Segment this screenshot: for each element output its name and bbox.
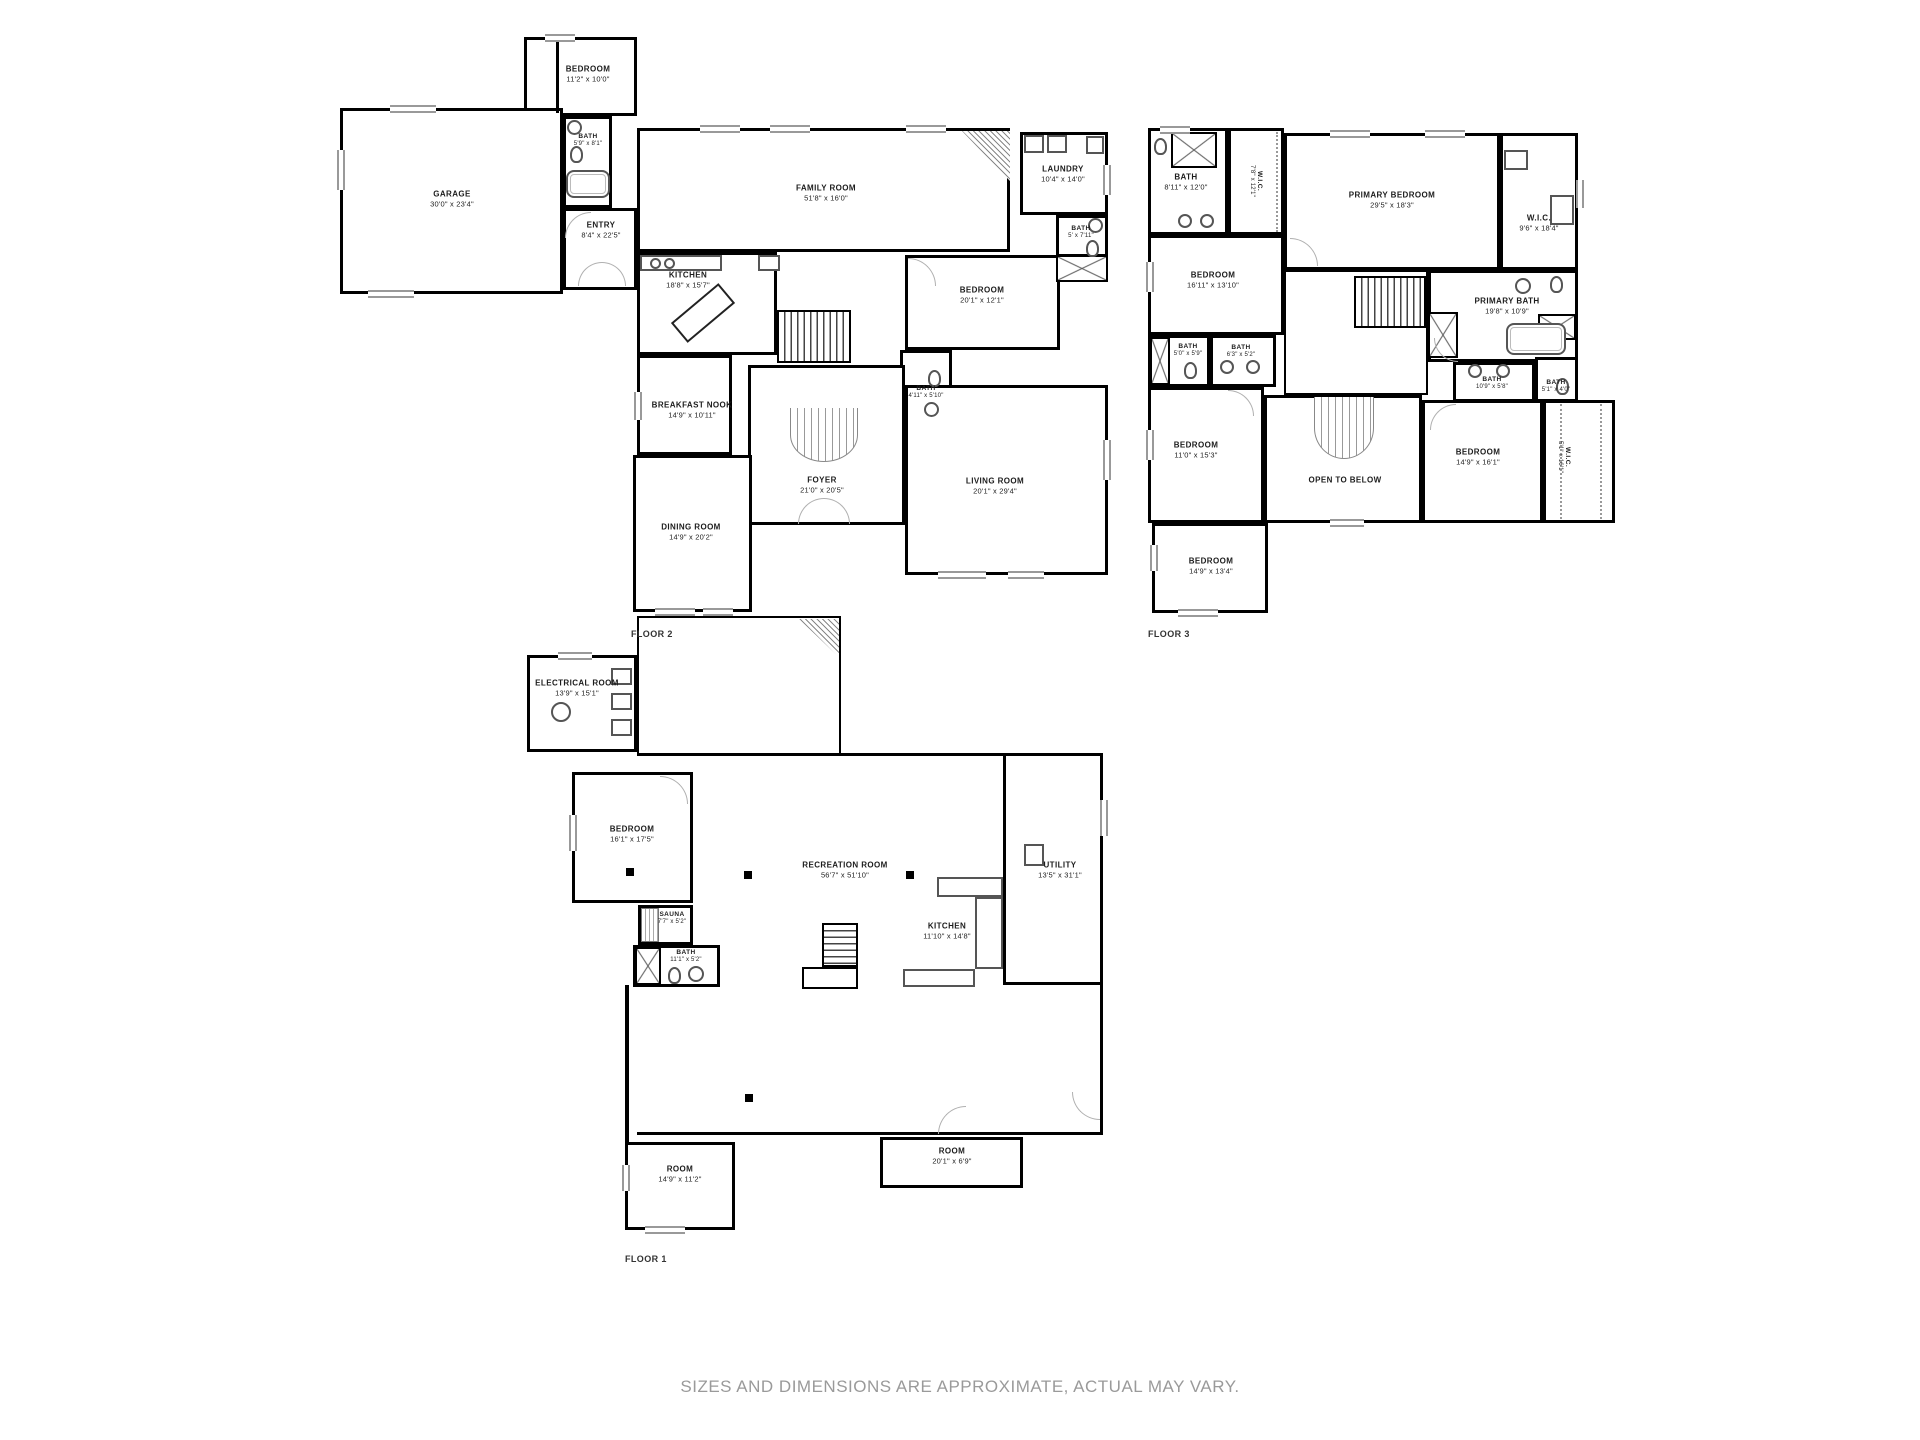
column-marker — [744, 871, 752, 879]
room-label-f3-bedroom-bottom: BEDROOM14'9" x 13'4" — [1189, 557, 1234, 576]
room-label-f2-kitchen: KITCHEN18'8" x 15'7" — [666, 271, 710, 290]
window-marker — [655, 608, 695, 616]
room-label-f3-bath-51: BATH5'1" x 4'0" — [1542, 379, 1570, 393]
room-label-f3-bath-109: BATH10'9" x 5'8" — [1476, 376, 1508, 390]
column-marker — [906, 871, 914, 879]
room-label-f3-bath-topleft: BATH8'11" x 12'0" — [1164, 173, 1207, 192]
window-marker — [545, 34, 575, 42]
room-label-f2-laundry: LAUNDRY10'4" x 14'0" — [1041, 165, 1085, 184]
room-label-f3-wic-right: W.I.C.9'6" x 18'4" — [1519, 214, 1558, 233]
window-marker — [1576, 180, 1584, 208]
toilet-fixture — [570, 146, 583, 163]
room-label-f3-wic-strip: W.I.C.5'1" x 16'1" — [1557, 441, 1571, 473]
sink-fixture — [664, 258, 675, 269]
shower-x — [635, 947, 661, 985]
room-label-f1-bath: BATH11'1" x 5'2" — [670, 949, 702, 963]
room-label-f3-bath-small2: BATH6'3" x 5'2" — [1227, 344, 1255, 358]
room-label-f1-room-right: ROOM20'1" x 6'9" — [932, 1147, 971, 1166]
room-label-f3-bedroom-149: BEDROOM14'9" x 16'1" — [1456, 448, 1501, 467]
sink-fixture — [650, 258, 661, 269]
curved-staircase — [790, 408, 858, 462]
toilet-fixture — [1550, 276, 1563, 293]
room-label-f3-bath-small1: BATH5'0" x 5'9" — [1174, 343, 1202, 357]
window-marker — [1146, 430, 1154, 460]
room-label-f2-garage: GARAGE30'0" x 23'4" — [430, 190, 474, 209]
room-label-f3-bedroom-left: BEDROOM16'11" x 13'10" — [1187, 271, 1239, 290]
room-label-f3-open-to-below: OPEN TO BELOW — [1308, 476, 1381, 485]
staircase — [1354, 276, 1426, 328]
floor1-label: FLOOR 1 — [625, 1254, 667, 1264]
room-label-f2-bath-right: BATH5' x 7'11" — [1068, 225, 1094, 239]
room-label-f1-utility: UTILITY13'5" x 31'1" — [1038, 861, 1082, 880]
closet-rail — [1276, 132, 1278, 232]
curved-staircase — [1314, 397, 1374, 459]
room-label-f2-living-room: LIVING ROOM20'1" x 29'4" — [966, 477, 1024, 496]
sink-fixture — [1220, 360, 1234, 374]
floor2-label: FLOOR 2 — [631, 629, 673, 639]
kitchen-counter — [937, 877, 1003, 897]
window-marker — [569, 815, 577, 851]
window-marker — [906, 125, 946, 133]
window-marker — [1146, 262, 1154, 292]
room-label-f2-foyer: FOYER21'0" x 20'5" — [800, 476, 844, 495]
window-marker — [1330, 519, 1364, 527]
electrical-fixture — [611, 719, 632, 736]
sink-fixture — [1200, 214, 1214, 228]
staircase — [777, 310, 851, 363]
window-marker — [703, 608, 733, 616]
room-label-f3-primary-bath: PRIMARY BATH19'8" x 10'9" — [1474, 297, 1539, 316]
window-marker — [337, 150, 345, 190]
room-f3-wic-strip — [1543, 400, 1615, 523]
room-label-f2-bedroom: BEDROOM20'1" x 12'1" — [960, 286, 1005, 305]
sink-fixture — [1246, 360, 1260, 374]
room-label-f2-dining-room: DINING ROOM14'9" x 20'2" — [661, 523, 721, 542]
stair-landing — [802, 967, 858, 989]
room-label-f2-family-room: FAMILY ROOM51'8" x 16'0" — [796, 184, 856, 203]
closet-rail — [1600, 404, 1602, 519]
room-label-f2-entry: ENTRY8'4" x 22'5" — [581, 221, 620, 240]
floorplan-canvas: BEDROOM11'2" x 10'0" GARAGE30'0" x 23'4"… — [0, 0, 1920, 1440]
room-label-f1-room-left: ROOM14'9" x 11'2" — [658, 1165, 701, 1184]
kitchen-counter — [903, 969, 975, 987]
room-label-f2-bedroom-top: BEDROOM11'2" x 10'0" — [566, 65, 611, 84]
room-label-f2-bath-middle: BATH4'11" x 5'10" — [908, 385, 943, 399]
wall-segment — [625, 985, 629, 1142]
room-label-f1-recreation: RECREATION ROOM56'7" x 51'10" — [802, 861, 887, 880]
bathtub-fixture — [1506, 323, 1566, 355]
room-f1-room-left — [625, 1142, 735, 1230]
window-marker — [938, 571, 986, 579]
window-marker — [645, 1226, 685, 1234]
shelf-fixture — [1504, 150, 1528, 170]
kitchen-counter — [975, 897, 1003, 969]
window-marker — [1103, 165, 1111, 195]
shower-x — [1150, 337, 1170, 385]
room-label-f1-sauna: SAUNA7'7" x 5'2" — [658, 911, 686, 925]
electrical-fixture — [551, 702, 571, 722]
sink-fixture — [1178, 214, 1192, 228]
sink-fixture — [1086, 136, 1104, 154]
window-marker — [390, 105, 436, 113]
washer-dryer-fixture — [1024, 135, 1044, 153]
window-marker — [700, 125, 740, 133]
window-marker — [622, 1165, 630, 1191]
sink-fixture — [688, 966, 704, 982]
window-marker — [1008, 571, 1044, 579]
wall-segment — [556, 40, 559, 113]
room-label-f3-wic-left: W.I.C.7'8" x 12'1" — [1249, 165, 1263, 197]
window-marker — [1425, 130, 1465, 138]
column-marker — [626, 868, 634, 876]
window-marker — [634, 392, 642, 420]
bathtub-fixture — [566, 170, 610, 198]
footer-disclaimer: SIZES AND DIMENSIONS ARE APPROXIMATE, AC… — [0, 1377, 1920, 1397]
toilet-fixture — [1086, 240, 1099, 257]
window-marker — [558, 652, 592, 660]
room-label-f1-bedroom: BEDROOM16'1" x 17'5" — [610, 825, 655, 844]
staircase — [822, 923, 858, 967]
washer-dryer-fixture — [1047, 135, 1067, 153]
room-f3-bath-small2 — [1210, 335, 1276, 387]
window-marker — [1100, 800, 1108, 836]
window-marker — [1160, 126, 1190, 134]
room-label-f1-electrical: ELECTRICAL ROOM13'9" x 15'1" — [535, 679, 619, 698]
window-marker — [770, 125, 810, 133]
window-marker — [1150, 545, 1158, 571]
toilet-fixture — [1154, 138, 1167, 155]
shower-x — [1171, 132, 1217, 168]
sauna-bench-hatch — [641, 908, 659, 942]
room-label-f2-breakfast-nook: BREAKFAST NOOK14'9" x 10'11" — [652, 401, 733, 420]
closet-x — [1056, 255, 1108, 282]
toilet-fixture — [1184, 362, 1197, 379]
window-marker — [1178, 609, 1218, 617]
room-label-f1-kitchen: KITCHEN11'10" x 14'8" — [923, 922, 971, 941]
room-label-f2-bath-entry: BATH5'9" x 8'1" — [574, 133, 602, 147]
window-marker — [1103, 440, 1111, 480]
kitchen-counter — [758, 255, 780, 271]
floor3-label: FLOOR 3 — [1148, 629, 1190, 639]
sink-fixture — [1515, 278, 1531, 294]
toilet-fixture — [668, 967, 681, 984]
room-label-f3-primary-bedroom: PRIMARY BEDROOM29'5" x 18'3" — [1349, 191, 1435, 210]
sink-fixture — [924, 402, 939, 417]
window-marker — [368, 290, 414, 298]
room-label-f3-bedroom-11: BEDROOM11'0" x 15'3" — [1174, 441, 1219, 460]
column-marker — [745, 1094, 753, 1102]
window-marker — [1330, 130, 1370, 138]
